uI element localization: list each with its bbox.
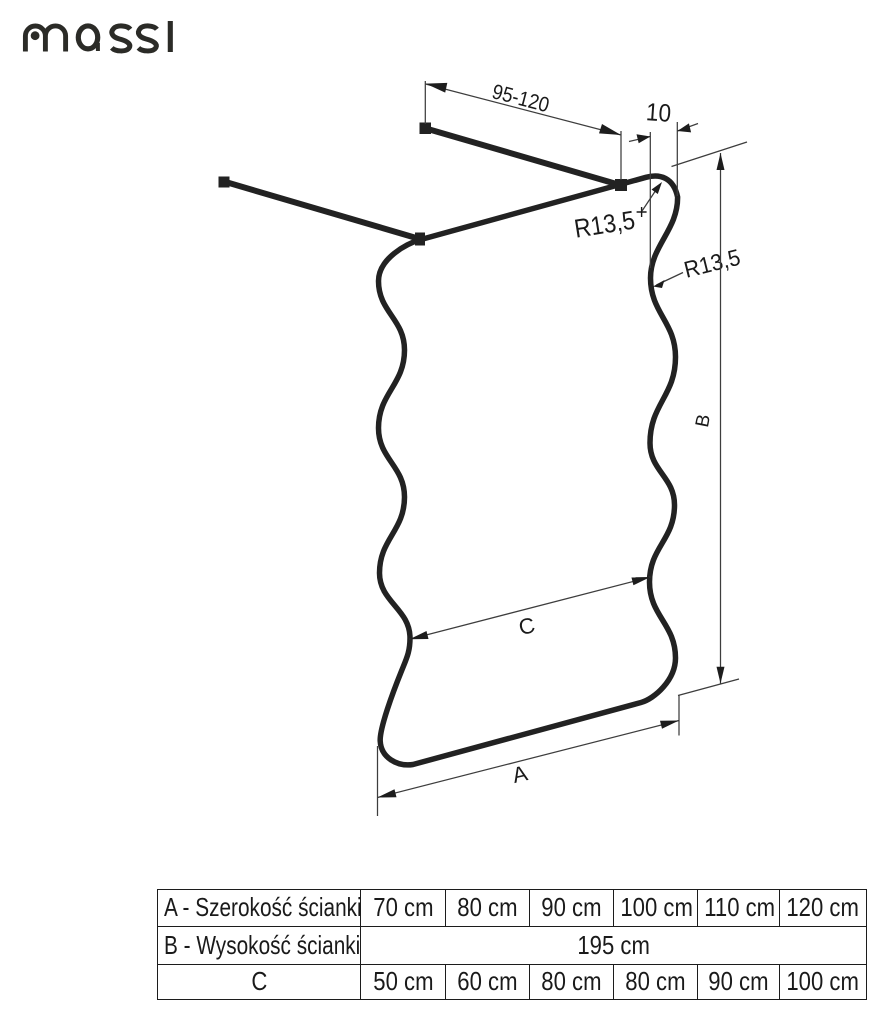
svg-text:C: C: [516, 612, 537, 640]
svg-text:R13,5: R13,5: [572, 205, 637, 244]
svg-text:95-120: 95-120: [490, 80, 552, 117]
svg-text:B: B: [692, 413, 715, 429]
svg-text:A: A: [510, 760, 530, 788]
svg-text:10: 10: [645, 98, 672, 128]
svg-text:R13,5: R13,5: [681, 244, 743, 283]
